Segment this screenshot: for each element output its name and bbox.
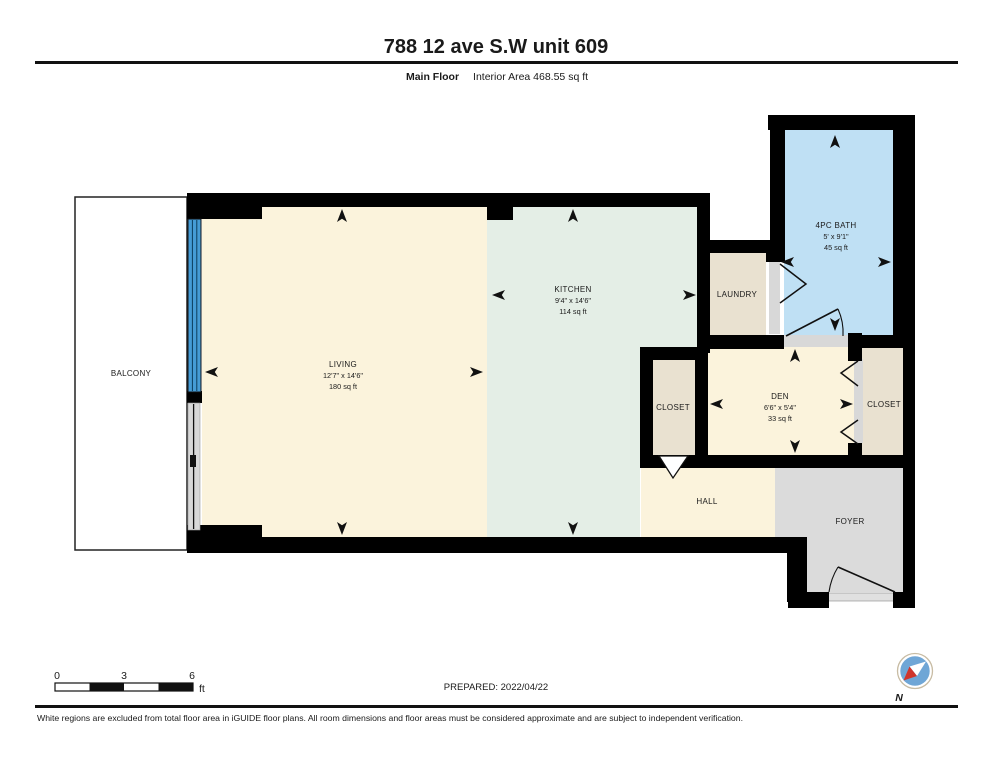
- floor-subtitle: Main FloorInterior Area 468.55 sq ft: [406, 71, 588, 83]
- room-label-closet-left: CLOSET: [656, 403, 690, 412]
- scale-unit-label: ft: [199, 683, 205, 695]
- window-glass: [188, 219, 201, 392]
- sliding-door-icon: [188, 403, 200, 530]
- wall-segment: [770, 128, 785, 262]
- foyer-floor-lower: [807, 537, 903, 592]
- wall-segment: [788, 592, 829, 608]
- room-label-den: DEN: [771, 392, 789, 401]
- wall-segment: [487, 207, 513, 220]
- wall-segment: [695, 347, 708, 465]
- wall-segment: [640, 347, 653, 465]
- footer-divider: [35, 705, 958, 708]
- scale-tick-0: 0: [54, 670, 60, 682]
- page-title: 788 12 ave S.W unit 609: [384, 36, 609, 58]
- entry-door-threshold: [828, 593, 895, 601]
- wall-segment: [768, 115, 915, 130]
- room-label-living: LIVING: [329, 360, 357, 369]
- laundry-door-track: [769, 258, 780, 334]
- wall-segment: [893, 592, 915, 608]
- room-dims-den: 6'6" x 5'4": [764, 403, 796, 412]
- sliding-door-handle: [190, 455, 196, 467]
- wall-segment: [697, 193, 710, 353]
- interior-area-label: Interior Area 468.55 sq ft: [473, 71, 588, 83]
- room-label-hall: HALL: [696, 497, 717, 506]
- wall-segment: [187, 193, 262, 219]
- room-label-bath: 4PC BATH: [816, 221, 857, 230]
- room-dims-living: 12'7" x 14'6": [323, 371, 363, 380]
- wall-segment: [187, 193, 710, 207]
- wall-segment: [187, 391, 202, 403]
- scale-bar: 0 3 6 ft: [54, 670, 205, 695]
- scale-tick-3: 3: [121, 670, 127, 682]
- room-dims-bath: 5' x 9'1": [823, 232, 849, 241]
- footer-disclaimer: White regions are excluded from total fl…: [37, 713, 743, 723]
- room-label-closet-right: CLOSET: [867, 400, 901, 409]
- room-label-kitchen: KITCHEN: [554, 285, 591, 294]
- room-label-balcony: BALCONY: [111, 369, 152, 378]
- bath-door-threshold: [784, 335, 848, 347]
- closet-right-door-track: [854, 359, 863, 443]
- room-label-laundry: LAUNDRY: [717, 290, 758, 299]
- scale-tick-6: 6: [189, 670, 195, 682]
- room-area-kitchen: 114 sq ft: [559, 307, 586, 316]
- room-dims-kitchen: 9'4" x 14'6": [555, 296, 591, 305]
- compass-icon: N: [895, 654, 932, 705]
- window-icon: [188, 219, 201, 392]
- wall-segment: [187, 529, 202, 541]
- kitchen-floor-upper: [487, 207, 697, 350]
- room-area-den: 33 sq ft: [768, 414, 792, 423]
- compass-north-label: N: [895, 692, 903, 704]
- wall-segment: [697, 335, 784, 349]
- header-divider: [35, 61, 958, 64]
- wall-segment: [903, 335, 915, 608]
- foyer-floor-upper: [775, 468, 903, 537]
- kitchen-floor-lower: [487, 350, 640, 537]
- prepared-date-label: PREPARED: 2022/04/22: [444, 682, 548, 693]
- wall-segment: [187, 537, 807, 553]
- room-label-foyer: FOYER: [835, 517, 864, 526]
- wall-segment: [893, 115, 915, 347]
- floor-plan-page: 788 12 ave S.W unit 609 Main FloorInteri…: [0, 0, 993, 768]
- room-area-bath: 45 sq ft: [824, 243, 848, 252]
- scale-bar-segment: [159, 683, 194, 691]
- room-area-living: 180 sq ft: [329, 382, 357, 391]
- den-floor: [708, 347, 854, 455]
- scale-bar-segment: [90, 683, 125, 691]
- floor-label: Main Floor: [406, 71, 459, 83]
